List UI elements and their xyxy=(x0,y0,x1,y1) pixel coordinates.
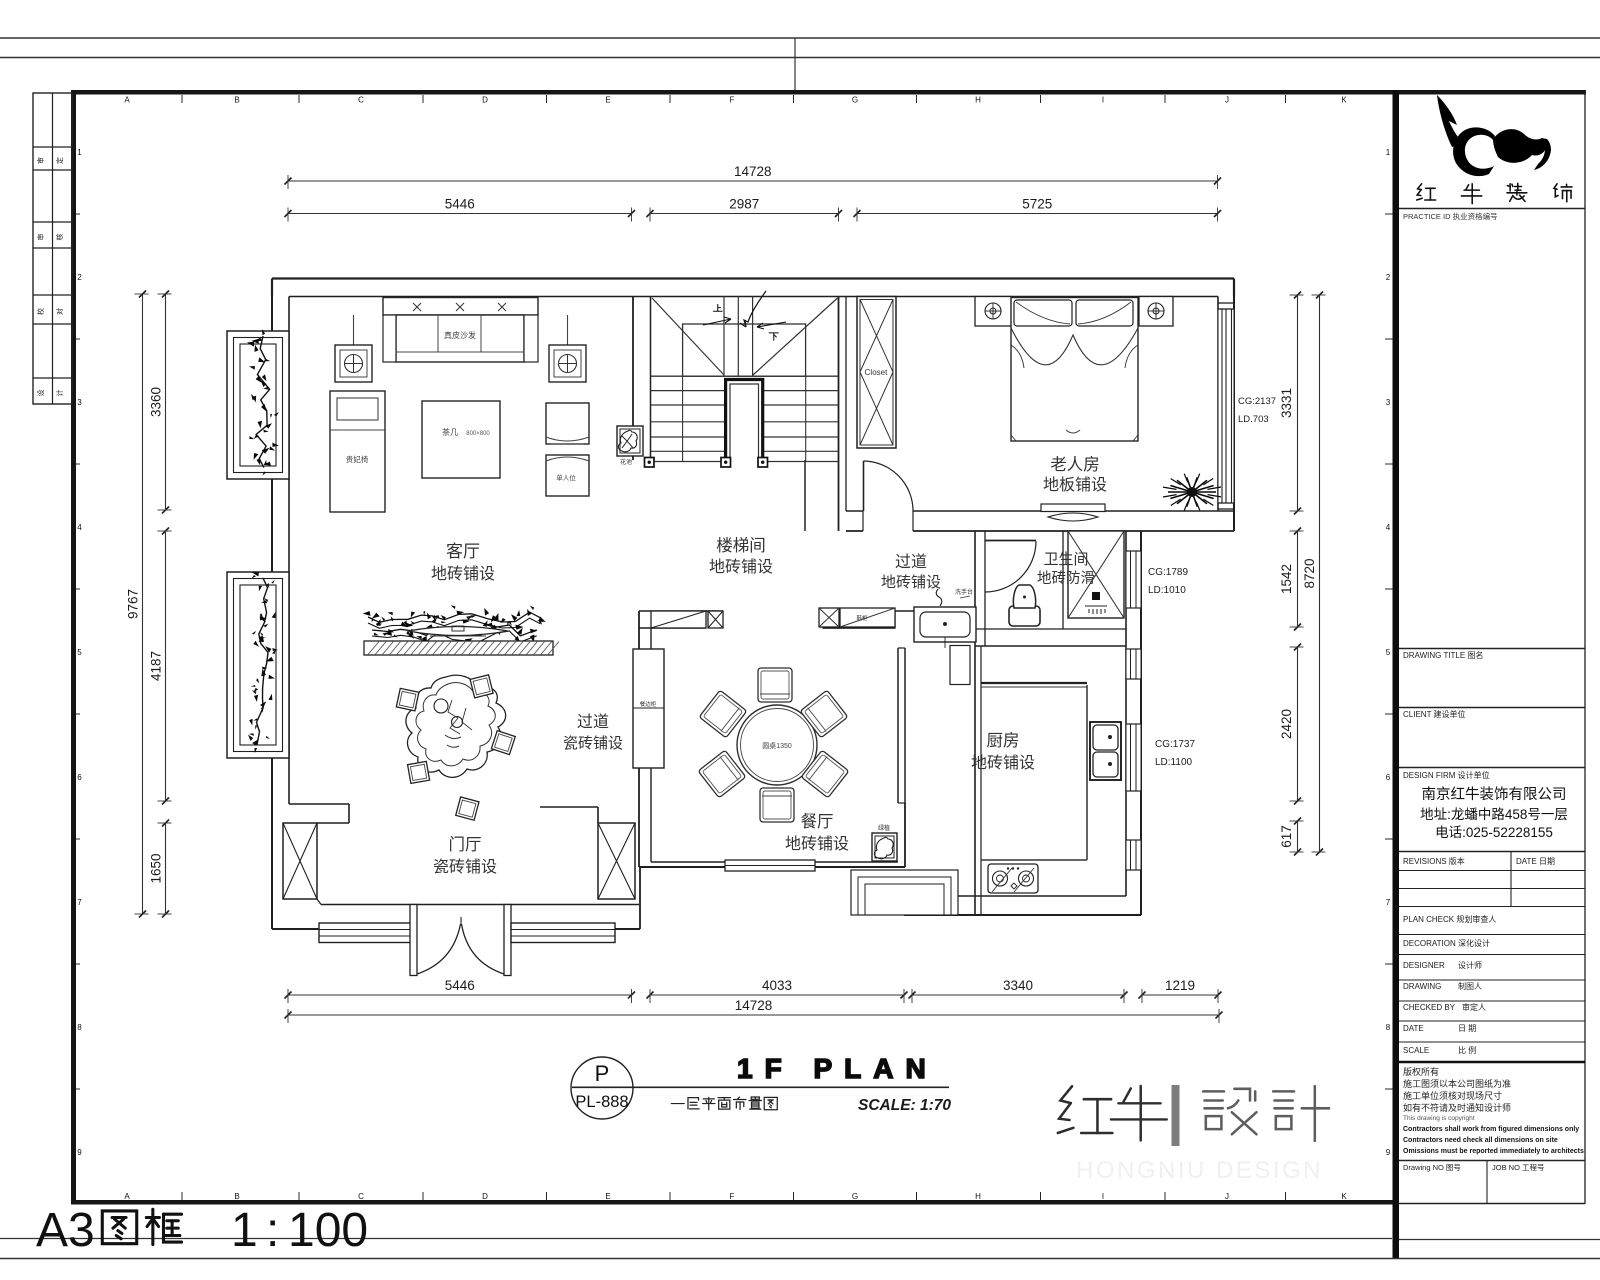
svg-text:F: F xyxy=(730,1192,735,1201)
svg-text:3: 3 xyxy=(77,398,82,407)
svg-text:H: H xyxy=(975,96,981,105)
svg-text:CHECKED BY: CHECKED BY xyxy=(1403,1003,1456,1012)
svg-text:F: F xyxy=(730,96,735,105)
svg-text:G: G xyxy=(852,1192,858,1201)
svg-text:Contractors shall work from fi: Contractors shall work from figured dime… xyxy=(1403,1126,1579,1133)
svg-text:比 例: 比 例 xyxy=(1458,1045,1476,1055)
svg-text:地址:龙蟠中路458号一层: 地址:龙蟠中路458号一层 xyxy=(1420,807,1568,822)
svg-text:C: C xyxy=(358,96,364,105)
svg-text:过道: 过道 xyxy=(895,553,927,571)
svg-text:E: E xyxy=(605,96,610,105)
svg-text:圆桌1350: 圆桌1350 xyxy=(762,741,792,750)
svg-text:审: 审 xyxy=(36,234,45,241)
svg-text:2: 2 xyxy=(1386,273,1391,282)
svg-text:过道: 过道 xyxy=(577,713,609,731)
svg-text:DESIGN FIRM 设计单位: DESIGN FIRM 设计单位 xyxy=(1403,770,1490,780)
svg-text:P: P xyxy=(595,1061,610,1086)
svg-text:LD:1100: LD:1100 xyxy=(1155,757,1193,768)
svg-text:茶几: 茶几 xyxy=(442,427,458,437)
svg-text:校: 校 xyxy=(36,308,45,315)
svg-text:I: I xyxy=(1102,96,1104,105)
svg-text:CLIENT 建设单位: CLIENT 建设单位 xyxy=(1403,709,1466,719)
svg-text:客厅: 客厅 xyxy=(446,542,480,561)
svg-text:7: 7 xyxy=(77,898,82,907)
svg-text:餐边柜: 餐边柜 xyxy=(640,700,657,708)
svg-text:DATE 日期: DATE 日期 xyxy=(1516,857,1555,866)
svg-text:日 期: 日 期 xyxy=(1458,1024,1476,1033)
svg-text:4: 4 xyxy=(77,523,82,532)
svg-text:3340: 3340 xyxy=(1003,978,1033,993)
svg-text:5446: 5446 xyxy=(445,197,475,212)
svg-text:5446: 5446 xyxy=(445,978,475,993)
svg-text:8720: 8720 xyxy=(1302,558,1317,588)
svg-text:真皮沙发: 真皮沙发 xyxy=(444,330,476,340)
svg-text:2: 2 xyxy=(77,273,82,282)
svg-text:J: J xyxy=(1225,96,1229,105)
svg-text:定: 定 xyxy=(55,157,64,164)
svg-text:DESIGNER: DESIGNER xyxy=(1403,961,1445,970)
svg-text:2987: 2987 xyxy=(729,197,759,212)
svg-text:鞋柜: 鞋柜 xyxy=(856,614,868,622)
svg-text:计: 计 xyxy=(55,390,64,397)
svg-text:5: 5 xyxy=(77,648,82,657)
svg-text:DRAWING: DRAWING xyxy=(1403,982,1441,991)
svg-text:制图人: 制图人 xyxy=(1458,981,1482,991)
svg-text:9767: 9767 xyxy=(126,589,141,619)
svg-text:I: I xyxy=(1102,1192,1104,1201)
svg-text:南京红牛装饰有限公司: 南京红牛装饰有限公司 xyxy=(1422,786,1567,803)
svg-text:地板铺设: 地板铺设 xyxy=(1043,476,1107,494)
svg-text:PL-888: PL-888 xyxy=(575,1093,628,1111)
svg-text:100: 100 xyxy=(288,1204,368,1257)
svg-text:CG:1789: CG:1789 xyxy=(1148,567,1188,578)
svg-text:SCALE: SCALE xyxy=(1403,1046,1429,1055)
svg-text:E: E xyxy=(605,1192,610,1201)
svg-text:7: 7 xyxy=(1386,898,1391,907)
svg-text:Contractors need check all dim: Contractors need check all dimensions on… xyxy=(1403,1137,1558,1144)
svg-text:D: D xyxy=(482,96,488,105)
svg-text:版权所有: 版权所有 xyxy=(1403,1066,1439,1077)
svg-text:1650: 1650 xyxy=(149,853,164,883)
svg-text:1219: 1219 xyxy=(1165,978,1195,993)
svg-text:花池: 花池 xyxy=(620,458,632,466)
svg-text:Closet: Closet xyxy=(865,368,888,377)
svg-text:DRAWING TITLE 图名: DRAWING TITLE 图名 xyxy=(1403,650,1483,660)
svg-text:5725: 5725 xyxy=(1022,197,1052,212)
svg-text:2420: 2420 xyxy=(1279,709,1294,739)
svg-text:1: 1 xyxy=(1386,148,1391,157)
svg-text:绿植: 绿植 xyxy=(878,824,890,832)
svg-text:A: A xyxy=(124,96,130,105)
svg-text:PLAN CHECK 规划审查人: PLAN CHECK 规划审查人 xyxy=(1403,914,1496,924)
svg-text:4033: 4033 xyxy=(762,978,792,993)
svg-text:CG:2137: CG:2137 xyxy=(1238,396,1276,407)
svg-text:单人位: 单人位 xyxy=(556,473,576,482)
svg-text:J: J xyxy=(1225,1192,1229,1201)
svg-text:JOB NO 工程号: JOB NO 工程号 xyxy=(1492,1163,1545,1172)
svg-text:1542: 1542 xyxy=(1279,564,1294,594)
svg-text:1: 1 xyxy=(77,148,82,157)
svg-text:5: 5 xyxy=(1386,648,1391,657)
svg-text:PRACTICE ID 执业资格编号: PRACTICE ID 执业资格编号 xyxy=(1403,211,1498,221)
svg-text:H: H xyxy=(975,1192,981,1201)
svg-text:LD:1010: LD:1010 xyxy=(1148,585,1186,596)
svg-text:14728: 14728 xyxy=(734,164,772,179)
svg-text:6: 6 xyxy=(1386,773,1391,782)
svg-text:审: 审 xyxy=(36,157,45,164)
svg-text:地砖铺设: 地砖铺设 xyxy=(431,565,495,583)
svg-text:4187: 4187 xyxy=(149,651,164,681)
svg-text:Drawing NO 图号: Drawing NO 图号 xyxy=(1403,1163,1461,1172)
svg-text:SCALE: 1:70: SCALE: 1:70 xyxy=(858,1097,951,1114)
svg-text:CG:1737: CG:1737 xyxy=(1155,739,1195,750)
svg-text:地砖铺设: 地砖铺设 xyxy=(709,558,773,576)
svg-text:HONGNIU DESIGN: HONGNIU DESIGN xyxy=(1076,1157,1323,1184)
svg-text:3331: 3331 xyxy=(1279,388,1294,418)
svg-text:瓷砖铺设: 瓷砖铺设 xyxy=(563,735,623,752)
svg-text::: : xyxy=(266,1204,279,1257)
svg-text:卫生间: 卫生间 xyxy=(1043,551,1088,568)
svg-text:对: 对 xyxy=(55,308,64,315)
svg-text:D: D xyxy=(482,1192,488,1201)
svg-text:瓷砖铺设: 瓷砖铺设 xyxy=(433,858,497,876)
svg-text:8: 8 xyxy=(1386,1023,1391,1032)
svg-text:餐厅: 餐厅 xyxy=(801,812,834,831)
svg-text:Omissions must be reported imm: Omissions must be reported immediately t… xyxy=(1403,1148,1584,1155)
svg-text:地砖铺设: 地砖铺设 xyxy=(785,835,849,853)
svg-text:6: 6 xyxy=(77,773,82,782)
svg-text:核: 核 xyxy=(55,234,64,241)
svg-text:C: C xyxy=(358,1192,364,1201)
svg-text:楼梯间: 楼梯间 xyxy=(716,536,766,555)
svg-text:贵妃椅: 贵妃椅 xyxy=(346,454,369,464)
svg-text:1: 1 xyxy=(231,1204,258,1257)
svg-text:电话:025-52228155: 电话:025-52228155 xyxy=(1435,825,1553,840)
svg-text:617: 617 xyxy=(1279,825,1294,848)
svg-text:REVISIONS 版本: REVISIONS 版本 xyxy=(1403,856,1465,866)
svg-text:洗手台: 洗手台 xyxy=(955,588,973,596)
svg-text:施工单位须核对现场尺寸: 施工单位须核对现场尺寸 xyxy=(1403,1090,1502,1101)
svg-text:This drawing is copyright: This drawing is copyright xyxy=(1403,1115,1475,1122)
svg-text:厨房: 厨房 xyxy=(987,731,1020,750)
svg-text:B: B xyxy=(234,96,239,105)
svg-text:B: B xyxy=(234,1192,239,1201)
svg-text:设: 设 xyxy=(36,390,45,397)
svg-text:A: A xyxy=(124,1192,130,1201)
svg-text:设计师: 设计师 xyxy=(1458,960,1482,970)
svg-text:4: 4 xyxy=(1386,523,1391,532)
svg-text:地砖防滑: 地砖防滑 xyxy=(1037,570,1095,587)
svg-text:K: K xyxy=(1341,96,1347,105)
svg-text:G: G xyxy=(852,96,858,105)
svg-text:如有不符请及时通知设计师: 如有不符请及时通知设计师 xyxy=(1403,1102,1511,1113)
svg-text:老人房: 老人房 xyxy=(1050,455,1100,474)
svg-text:8: 8 xyxy=(77,1023,82,1032)
svg-text:9: 9 xyxy=(1386,1148,1391,1157)
svg-text:施工图须以本公司图纸为准: 施工图须以本公司图纸为准 xyxy=(1403,1078,1511,1089)
svg-text:审定人: 审定人 xyxy=(1462,1002,1486,1012)
svg-text:K: K xyxy=(1341,1192,1347,1201)
svg-text:1F PLAN: 1F PLAN xyxy=(737,1053,938,1084)
svg-text:DECORATION 深化设计: DECORATION 深化设计 xyxy=(1403,938,1490,948)
svg-text:地砖铺设: 地砖铺设 xyxy=(881,574,941,591)
svg-text:14728: 14728 xyxy=(735,998,773,1013)
svg-text:800×800: 800×800 xyxy=(466,431,490,437)
svg-text:地砖铺设: 地砖铺设 xyxy=(971,754,1035,772)
svg-text:A3: A3 xyxy=(36,1204,95,1257)
svg-text:3: 3 xyxy=(1386,398,1391,407)
svg-text:DATE: DATE xyxy=(1403,1024,1424,1033)
svg-text:LD.703: LD.703 xyxy=(1238,414,1269,425)
svg-text:3360: 3360 xyxy=(149,387,164,417)
svg-text:门厅: 门厅 xyxy=(449,835,482,854)
svg-text:9: 9 xyxy=(77,1148,82,1157)
